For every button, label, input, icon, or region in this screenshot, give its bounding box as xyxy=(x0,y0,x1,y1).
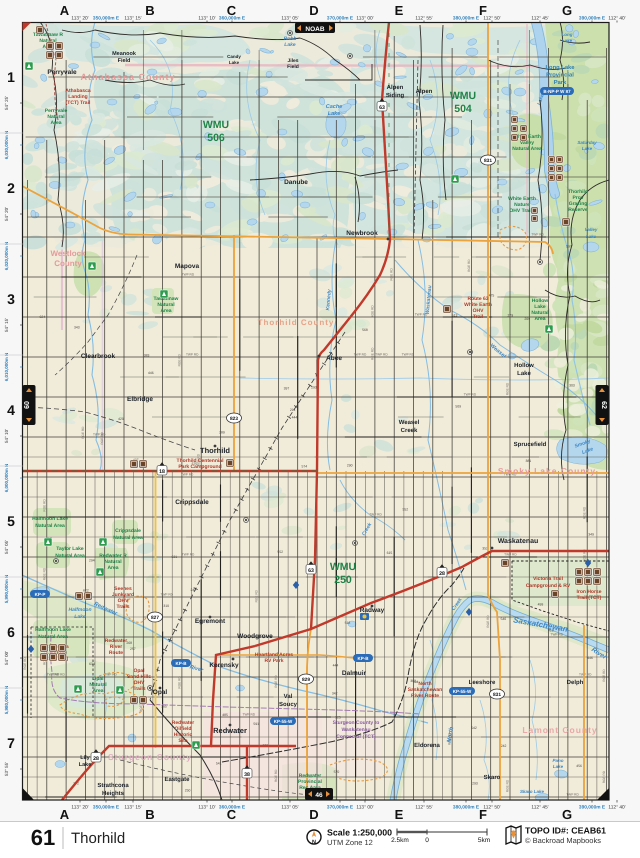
svg-text:294: 294 xyxy=(89,559,95,563)
svg-text:390,000m E: 390,000m E xyxy=(579,16,606,22)
svg-text:TWP RD: TWP RD xyxy=(551,633,564,637)
svg-text:28: 28 xyxy=(93,756,99,762)
svg-text:Halfmoon Lake: Halfmoon Lake xyxy=(35,627,71,633)
svg-text:370,000m E: 370,000m E xyxy=(327,16,354,22)
svg-text:Alpen: Alpen xyxy=(387,84,404,91)
svg-text:Redwater: Redwater xyxy=(299,773,322,779)
svg-text:Field: Field xyxy=(287,64,299,70)
svg-text:Mapova: Mapova xyxy=(175,263,200,270)
svg-text:RGE RD: RGE RD xyxy=(177,353,181,366)
svg-text:518: 518 xyxy=(345,621,351,625)
svg-text:Lake: Lake xyxy=(74,614,86,620)
svg-text:303: 303 xyxy=(569,384,575,388)
svg-text:Thorhild: Thorhild xyxy=(71,830,125,847)
svg-text:KP-55-W: KP-55-W xyxy=(274,719,293,724)
svg-text:Victoria Trail: Victoria Trail xyxy=(533,576,564,582)
svg-text:Hollow: Hollow xyxy=(514,362,534,369)
svg-text:541: 541 xyxy=(216,761,222,765)
svg-text:RGE RD: RGE RD xyxy=(274,769,278,782)
svg-text:Westlock: Westlock xyxy=(51,249,87,258)
svg-text:53° 55': 53° 55' xyxy=(4,762,9,776)
svg-text:63: 63 xyxy=(308,568,314,574)
svg-text:591: 591 xyxy=(253,722,259,726)
svg-text:250: 250 xyxy=(334,574,352,586)
svg-text:Natural Area: Natural Area xyxy=(512,146,542,152)
svg-text:38: 38 xyxy=(244,772,250,778)
svg-text:A: A xyxy=(60,3,70,18)
svg-text:Natural Area: Natural Area xyxy=(113,535,143,541)
svg-text:Trail: Trail xyxy=(473,314,484,320)
svg-text:28: 28 xyxy=(439,571,445,577)
svg-text:112° 45': 112° 45' xyxy=(531,805,548,811)
svg-text:Lake: Lake xyxy=(328,111,341,117)
svg-text:Woodgrove: Woodgrove xyxy=(237,633,273,640)
svg-text:290: 290 xyxy=(347,463,353,467)
svg-text:Lily: Lily xyxy=(80,755,90,761)
svg-text:WMU: WMU xyxy=(330,561,356,573)
svg-text:Halfmoon: Halfmoon xyxy=(68,607,91,613)
svg-text:RGE RD: RGE RD xyxy=(255,589,259,602)
svg-text:Egremont: Egremont xyxy=(195,618,226,625)
svg-text:TWP RD: TWP RD xyxy=(104,673,117,677)
svg-text:Heights: Heights xyxy=(102,790,125,797)
svg-text:Waskatenau: Waskatenau xyxy=(342,727,371,733)
svg-text:TWP RD: TWP RD xyxy=(504,553,517,557)
svg-text:6,030,000m N: 6,030,000m N xyxy=(4,131,9,160)
svg-text:TWP RD: TWP RD xyxy=(160,593,173,597)
svg-text:631: 631 xyxy=(171,555,177,559)
svg-text:Val: Val xyxy=(284,693,293,700)
svg-text:1: 1 xyxy=(7,69,15,85)
svg-text:Soucy: Soucy xyxy=(279,701,298,708)
svg-text:Area: Area xyxy=(107,565,118,571)
svg-text:TWP RD: TWP RD xyxy=(52,673,65,677)
svg-text:310: 310 xyxy=(163,604,169,608)
svg-text:5,990,000m N: 5,990,000m N xyxy=(4,575,9,604)
svg-text:TWP RD: TWP RD xyxy=(354,353,367,357)
svg-text:RGE RD: RGE RD xyxy=(177,676,181,689)
svg-text:113° 15': 113° 15' xyxy=(124,805,141,811)
svg-text:54° 20': 54° 20' xyxy=(4,207,9,221)
svg-text:Area: Area xyxy=(160,308,171,314)
svg-text:54° 00': 54° 00' xyxy=(4,651,9,665)
svg-text:Lake: Lake xyxy=(284,42,296,48)
svg-text:Field: Field xyxy=(118,58,131,64)
svg-text:6,000,000m N: 6,000,000m N xyxy=(4,464,9,493)
svg-text:343: 343 xyxy=(74,325,80,329)
svg-text:Sturgeon County: Sturgeon County xyxy=(108,752,192,762)
svg-text:6,020,000m N: 6,020,000m N xyxy=(4,242,9,271)
svg-text:540: 540 xyxy=(500,617,506,621)
svg-text:RGE RD: RGE RD xyxy=(390,268,394,281)
svg-text:A: A xyxy=(60,807,70,822)
svg-text:Area: Area xyxy=(534,316,545,322)
svg-text:831: 831 xyxy=(493,692,501,698)
svg-text:Natural Area: Natural Area xyxy=(38,634,68,640)
svg-text:293: 293 xyxy=(311,385,317,389)
svg-text:4: 4 xyxy=(7,402,15,418)
svg-text:Campground & RV: Campground & RV xyxy=(526,583,571,589)
svg-text:Meanook: Meanook xyxy=(112,51,137,57)
svg-text:RGE RD: RGE RD xyxy=(602,770,606,783)
svg-text:G: G xyxy=(562,3,572,18)
svg-text:RGE RD: RGE RD xyxy=(467,259,471,272)
svg-text:Danube: Danube xyxy=(284,179,308,186)
svg-text:Route: Route xyxy=(109,650,123,656)
svg-text:KP-B: KP-B xyxy=(358,656,370,661)
svg-text:Dalmuir: Dalmuir xyxy=(342,670,367,677)
svg-text:7: 7 xyxy=(7,735,15,751)
svg-text:Site: Site xyxy=(178,738,187,744)
svg-text:63: 63 xyxy=(379,105,385,111)
svg-text:350,000m E: 350,000m E xyxy=(93,16,120,22)
svg-text:113° 00': 113° 00' xyxy=(356,805,373,811)
svg-text:WMU: WMU xyxy=(450,90,476,102)
svg-text:TWP RD: TWP RD xyxy=(181,473,194,477)
svg-text:Eldorena: Eldorena xyxy=(414,742,440,749)
svg-text:350,000m E: 350,000m E xyxy=(93,805,120,811)
svg-text:UTM Zone 12: UTM Zone 12 xyxy=(327,838,373,847)
svg-text:113° 20': 113° 20' xyxy=(71,805,88,811)
svg-text:Strathcona: Strathcona xyxy=(97,782,129,789)
svg-text:506: 506 xyxy=(207,132,225,144)
svg-text:Perryvale: Perryvale xyxy=(47,69,77,76)
svg-text:TWP RD: TWP RD xyxy=(93,433,106,437)
svg-text:634: 634 xyxy=(89,662,95,666)
svg-text:Lake: Lake xyxy=(229,60,240,65)
svg-text:5: 5 xyxy=(7,513,15,529)
svg-text:624: 624 xyxy=(39,315,45,319)
svg-text:279: 279 xyxy=(507,314,513,318)
svg-text:B-NP-P W 87: B-NP-P W 87 xyxy=(543,89,571,94)
svg-text:(TCT) Trail: (TCT) Trail xyxy=(66,100,91,106)
svg-text:209: 209 xyxy=(524,317,530,321)
svg-text:Park Campground: Park Campground xyxy=(178,464,221,470)
svg-text:Skaro: Skaro xyxy=(484,774,501,781)
svg-text:420: 420 xyxy=(118,417,124,421)
svg-text:Long: Long xyxy=(562,32,573,37)
svg-text:RGE RD: RGE RD xyxy=(506,382,510,395)
svg-text:257: 257 xyxy=(130,647,136,651)
svg-text:113° 10': 113° 10' xyxy=(198,805,215,811)
svg-text:397: 397 xyxy=(284,386,290,390)
svg-text:381: 381 xyxy=(525,459,531,463)
svg-text:RGE RD: RGE RD xyxy=(274,675,278,688)
svg-text:293: 293 xyxy=(472,781,478,785)
svg-text:113° 05': 113° 05' xyxy=(281,805,298,811)
svg-text:Crippsdale: Crippsdale xyxy=(175,499,209,506)
svg-text:Radway: Radway xyxy=(360,607,385,614)
svg-text:Skaro Lake: Skaro Lake xyxy=(520,789,545,794)
svg-text:242: 242 xyxy=(501,744,507,748)
svg-text:Redwater: Redwater xyxy=(213,726,247,735)
svg-text:5km: 5km xyxy=(478,837,490,844)
svg-text:504: 504 xyxy=(454,103,472,115)
svg-text:NOAB: NOAB xyxy=(305,26,324,33)
svg-text:456: 456 xyxy=(576,764,582,768)
svg-text:46: 46 xyxy=(315,792,323,799)
svg-text:Kerensky: Kerensky xyxy=(209,662,239,669)
svg-text:570: 570 xyxy=(334,770,340,774)
svg-text:Reserve: Reserve xyxy=(568,207,588,213)
svg-text:444: 444 xyxy=(333,663,339,667)
svg-text:Trail (TCT): Trail (TCT) xyxy=(577,595,602,601)
svg-text:Trails: Trails xyxy=(116,604,129,610)
svg-text:RGE RD: RGE RD xyxy=(370,347,374,360)
svg-text:499: 499 xyxy=(538,603,544,607)
svg-text:WMU: WMU xyxy=(203,119,229,131)
svg-text:RGE RD: RGE RD xyxy=(506,779,510,792)
svg-text:© Backroad Mapbooks: © Backroad Mapbooks xyxy=(525,836,601,845)
svg-text:Lake: Lake xyxy=(562,38,573,43)
svg-text:Thorhild County: Thorhild County xyxy=(258,318,335,327)
svg-text:Lake: Lake xyxy=(553,764,564,769)
svg-text:Taylor Lake: Taylor Lake xyxy=(56,546,84,552)
svg-text:Area: Area xyxy=(92,688,103,694)
svg-text:Natural Area: Natural Area xyxy=(55,553,85,559)
svg-text:542: 542 xyxy=(471,726,477,730)
svg-text:Sturgeon County to: Sturgeon County to xyxy=(333,720,380,726)
svg-text:574: 574 xyxy=(301,465,307,469)
svg-text:E: E xyxy=(395,807,404,822)
svg-text:F: F xyxy=(479,807,487,822)
svg-text:Lake: Lake xyxy=(79,762,92,768)
svg-text:831: 831 xyxy=(484,158,492,164)
svg-text:Lake: Lake xyxy=(517,370,531,377)
svg-text:568: 568 xyxy=(362,328,368,332)
svg-text:Sprucefield: Sprucefield xyxy=(514,441,547,448)
svg-text:River Route: River Route xyxy=(411,693,439,699)
svg-text:Smoky Lake County: Smoky Lake County xyxy=(498,466,596,476)
svg-text:Natural Area: Natural Area xyxy=(35,523,65,529)
svg-text:Opal: Opal xyxy=(153,689,168,696)
svg-text:615: 615 xyxy=(387,551,393,555)
svg-text:6,010,000m N: 6,010,000m N xyxy=(4,353,9,382)
svg-text:RV Park: RV Park xyxy=(264,658,283,664)
svg-text:N: N xyxy=(312,840,316,846)
svg-text:325: 325 xyxy=(335,715,341,719)
svg-text:349: 349 xyxy=(588,533,594,537)
svg-text:Halfmoon Lake: Halfmoon Lake xyxy=(32,516,68,522)
svg-text:Cache: Cache xyxy=(326,104,343,110)
svg-text:112° 55': 112° 55' xyxy=(415,805,432,811)
svg-text:54° 25': 54° 25' xyxy=(4,96,9,110)
svg-text:TWP RD: TWP RD xyxy=(182,273,195,277)
svg-text:Athabasca County: Athabasca County xyxy=(80,72,175,82)
svg-text:Siding: Siding xyxy=(386,92,405,99)
svg-text:6: 6 xyxy=(7,624,15,640)
svg-text:TWP RD: TWP RD xyxy=(243,713,256,717)
svg-text:E: E xyxy=(395,3,404,18)
svg-text:RGE RD: RGE RD xyxy=(81,426,85,439)
svg-text:Valley: Valley xyxy=(585,227,598,232)
svg-text:444: 444 xyxy=(292,416,298,420)
svg-text:289: 289 xyxy=(219,431,225,435)
svg-text:827: 827 xyxy=(151,615,159,621)
svg-text:Lamont County: Lamont County xyxy=(522,725,597,735)
svg-text:TWP RD: TWP RD xyxy=(531,233,544,237)
svg-text:Creek: Creek xyxy=(401,427,418,434)
svg-text:Crippsdale: Crippsdale xyxy=(115,528,141,534)
svg-text:383: 383 xyxy=(144,353,150,357)
svg-text:RGE RD: RGE RD xyxy=(583,506,587,519)
svg-text:Leeshore: Leeshore xyxy=(469,679,496,686)
svg-text:Weasel: Weasel xyxy=(399,419,420,426)
svg-text:C: C xyxy=(227,807,237,822)
svg-text:RGE RD: RGE RD xyxy=(23,657,27,670)
svg-text:TWP RD: TWP RD xyxy=(182,553,195,557)
svg-text:Provincial: Provincial xyxy=(546,72,574,79)
svg-text:Eastgate: Eastgate xyxy=(164,776,190,783)
svg-text:552: 552 xyxy=(402,507,408,511)
svg-text:D: D xyxy=(309,3,318,18)
svg-text:RGE RD: RGE RD xyxy=(42,567,46,580)
svg-text:RGE RD: RGE RD xyxy=(486,615,490,628)
svg-text:KP-55-W: KP-55-W xyxy=(453,689,472,694)
svg-text:342: 342 xyxy=(332,692,338,696)
svg-text:54° 10': 54° 10' xyxy=(4,429,9,443)
svg-text:Lake: Lake xyxy=(586,234,597,239)
svg-text:TWP RD: TWP RD xyxy=(369,513,382,517)
svg-text:Area: Area xyxy=(50,120,61,126)
svg-text:TWP RD: TWP RD xyxy=(186,353,199,357)
svg-text:D: D xyxy=(309,807,318,822)
svg-text:TWP RD: TWP RD xyxy=(566,793,579,797)
svg-text:360,000m E: 360,000m E xyxy=(219,16,246,22)
svg-text:513: 513 xyxy=(452,314,458,318)
svg-text:KP-B: KP-B xyxy=(176,661,188,666)
svg-text:509: 509 xyxy=(455,404,461,408)
svg-text:446: 446 xyxy=(587,656,593,660)
svg-text:552: 552 xyxy=(277,550,283,554)
svg-text:Delph: Delph xyxy=(567,679,584,686)
svg-text:RGE RD: RGE RD xyxy=(602,669,606,682)
svg-text:0: 0 xyxy=(425,837,429,844)
svg-text:TWP RD: TWP RD xyxy=(402,353,415,357)
svg-text:823: 823 xyxy=(230,416,238,422)
svg-text:County: County xyxy=(54,259,82,268)
svg-text:5,980,000m N: 5,980,000m N xyxy=(4,686,9,715)
svg-text:2.5km: 2.5km xyxy=(391,837,409,844)
svg-text:Park: Park xyxy=(554,79,567,86)
svg-text:Elbridge: Elbridge xyxy=(127,396,153,403)
svg-text:Trails: Trails xyxy=(132,686,145,692)
svg-text:TWP RD: TWP RD xyxy=(464,393,477,397)
svg-text:2: 2 xyxy=(7,180,15,196)
svg-text:250: 250 xyxy=(185,789,191,793)
svg-text:61: 61 xyxy=(31,825,55,850)
svg-text:Pano: Pano xyxy=(552,758,563,763)
svg-text:Saturday: Saturday xyxy=(577,140,597,145)
svg-text:18: 18 xyxy=(159,469,165,475)
svg-text:B: B xyxy=(145,807,154,822)
svg-text:390,000m E: 390,000m E xyxy=(579,805,606,811)
svg-text:G: G xyxy=(562,807,572,822)
svg-text:Long Lake: Long Lake xyxy=(546,64,576,71)
svg-text:475: 475 xyxy=(489,293,495,297)
svg-text:54° 05': 54° 05' xyxy=(4,540,9,554)
svg-text:60: 60 xyxy=(24,401,31,409)
svg-text:380,000m E: 380,000m E xyxy=(453,16,480,22)
svg-text:RGE RD: RGE RD xyxy=(42,499,46,512)
svg-text:112° 40': 112° 40' xyxy=(608,805,625,811)
svg-text:Waskatenau: Waskatenau xyxy=(498,537,539,545)
svg-text:380,000m E: 380,000m E xyxy=(453,805,480,811)
svg-text:Clearbrook: Clearbrook xyxy=(81,353,116,360)
svg-text:829: 829 xyxy=(302,677,310,683)
svg-text:485: 485 xyxy=(222,713,228,717)
svg-text:TWP RD: TWP RD xyxy=(375,353,388,357)
svg-text:3: 3 xyxy=(7,291,15,307)
svg-text:Scale 1:250,000: Scale 1:250,000 xyxy=(327,828,392,838)
svg-text:Connector (TCT): Connector (TCT) xyxy=(336,734,376,740)
svg-text:TOPO ID#: CEAB61: TOPO ID#: CEAB61 xyxy=(525,826,606,836)
svg-text:RGE RD: RGE RD xyxy=(370,305,374,318)
svg-text:Alpen: Alpen xyxy=(416,88,433,95)
svg-text:54° 15': 54° 15' xyxy=(4,318,9,332)
svg-text:62: 62 xyxy=(600,401,607,409)
svg-text:Lake: Lake xyxy=(582,146,593,151)
svg-text:370,000m E: 370,000m E xyxy=(327,805,354,811)
svg-text:KP-P: KP-P xyxy=(35,592,46,597)
svg-text:Candy: Candy xyxy=(227,54,241,59)
svg-text:Newbrook: Newbrook xyxy=(346,230,378,237)
svg-text:B: B xyxy=(145,3,154,18)
svg-text:TWP RD: TWP RD xyxy=(579,673,592,677)
svg-text:446: 446 xyxy=(148,371,154,375)
svg-text:Abee: Abee xyxy=(326,355,342,362)
